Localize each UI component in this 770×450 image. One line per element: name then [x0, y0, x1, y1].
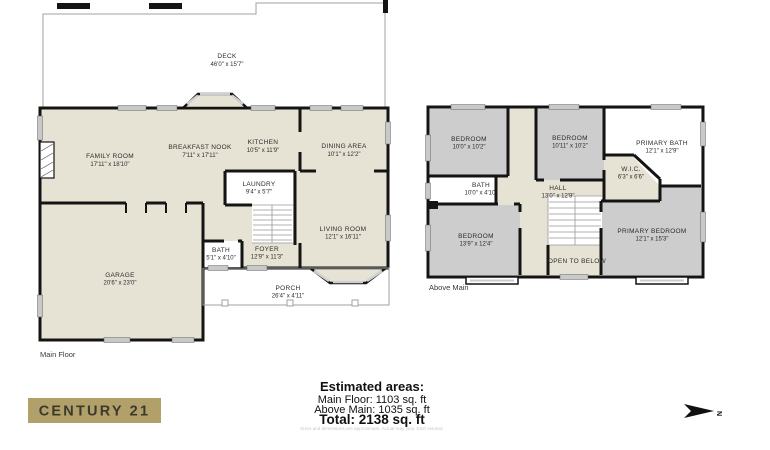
floorplan-drawing: DECK 46'0" x 15'7" FAMILY ROOM 17'11" x …: [0, 0, 770, 450]
room-label-bedroom-1: BEDROOM: [451, 136, 487, 143]
room-dims-primary-bedroom: 12'1" x 15'3": [636, 237, 669, 243]
above-main-plan: BEDROOM 10'0" x 10'2" BEDROOM 10'11" x 1…: [426, 105, 706, 293]
room-label-hall: HALL: [549, 185, 567, 192]
room-label-kitchen: KITCHEN: [248, 139, 279, 146]
north-arrow-icon: [684, 404, 714, 418]
room-dims-dining-area: 10'1" x 12'2": [328, 152, 361, 158]
room-label-bedroom-3: BEDROOM: [458, 233, 494, 240]
room-label-primary-bedroom: PRIMARY BEDROOM: [617, 228, 686, 235]
century21-logo: CENTURY 21: [28, 398, 161, 423]
room-label-garage: GARAGE: [105, 272, 135, 279]
deck-wall-stub: [383, 0, 388, 13]
room-label-bath: BATH: [212, 247, 230, 254]
bath-floor: [204, 241, 242, 267]
deck-wall-stub: [57, 3, 90, 9]
room-dims-primary-bath: 12'1" x 12'9": [646, 149, 679, 155]
room-label-family-room: FAMILY ROOM: [86, 153, 134, 160]
logo-text: CENTURY 21: [39, 404, 150, 420]
area-disclaimer: Sizes and dimensions are approximate. Ac…: [300, 426, 444, 431]
room-dims-wic: 6'3" x 6'6": [618, 175, 644, 181]
room-label-breakfast-nook: BREAKFAST NOOK: [168, 144, 232, 151]
room-dims-hall: 13'0" x 12'9": [542, 194, 575, 200]
room-dims-deck: 46'0" x 15'7": [211, 62, 244, 68]
room-label-living-room: LIVING ROOM: [320, 226, 367, 233]
room-label-open-to-below: OPEN TO BELOW: [548, 258, 607, 265]
room-label-dining-area: DINING AREA: [321, 143, 367, 150]
room-dims-foyer: 12'9" x 11'3": [251, 255, 283, 261]
room-label-deck: DECK: [217, 53, 237, 60]
stairs-main: [252, 205, 293, 243]
room-label-primary-bath: PRIMARY BATH: [636, 140, 688, 147]
room-dims-bedroom-3: 13'9" x 12'4": [460, 242, 493, 248]
room-dims-bedroom-1: 10'0" x 10'2": [453, 145, 486, 151]
deck-wall-stub: [149, 3, 182, 9]
room-dims-garage: 20'6" x 23'0": [104, 281, 137, 287]
room-label-porch: PORCH: [276, 285, 301, 292]
north-label: N: [715, 411, 722, 416]
room-dims-living-room: 12'1" x 16'11": [325, 235, 361, 241]
room-dims-bath: 5'1" x 4'10": [206, 256, 236, 262]
estimated-areas-title: Estimated areas:: [320, 379, 424, 394]
room-dims-breakfast-nook: 7'11" x 17'11": [182, 153, 217, 159]
room-dims-laundry: 9'4" x 5'7": [246, 190, 272, 196]
floorplan-sheet: DECK 46'0" x 15'7" FAMILY ROOM 17'11" x …: [0, 0, 770, 450]
room-dims-upper-bath: 10'0" x 4'10": [465, 191, 498, 197]
room-label-laundry: LAUNDRY: [242, 181, 275, 188]
room-label-foyer: FOYER: [255, 246, 279, 253]
room-dims-kitchen: 10'5" x 11'9": [247, 148, 279, 154]
total-area: Total: 2138 sq. ft: [319, 412, 425, 427]
north-arrow: N: [684, 404, 722, 418]
main-floor-plan: DECK 46'0" x 15'7" FAMILY ROOM 17'11" x …: [38, 0, 391, 359]
wall-junction-block: [428, 201, 438, 209]
room-label-bedroom-2: BEDROOM: [552, 135, 588, 142]
room-label-upper-bath: BATH: [472, 182, 490, 189]
estimated-areas-block: Estimated areas: Main Floor: 1103 sq. ft…: [300, 379, 444, 431]
room-dims-bedroom-2: 10'11" x 10'2": [552, 144, 588, 150]
room-dims-porch: 26'4" x 4'11": [272, 294, 304, 300]
room-label-wic: W.I.C.: [621, 166, 641, 173]
main-floor-label: Main Floor: [40, 350, 76, 359]
room-dims-family-room: 17'11" x 18'10": [90, 162, 129, 168]
deck-outline: [43, 3, 385, 107]
above-main-label: Above Main: [429, 283, 469, 292]
laundry-floor: [227, 171, 293, 205]
